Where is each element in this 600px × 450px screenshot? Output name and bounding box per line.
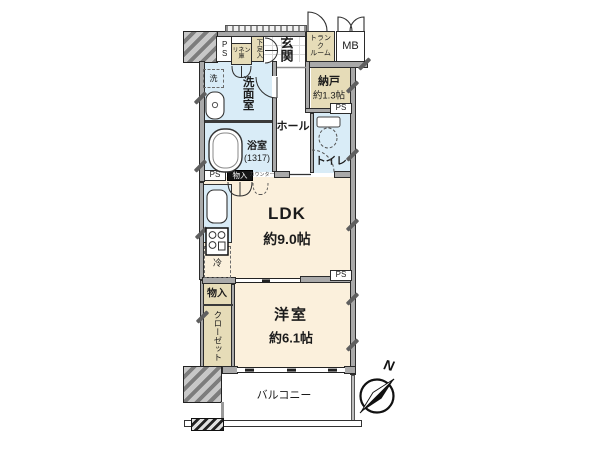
fridge-box: 冷 (204, 246, 231, 278)
meter-box-label: MB (342, 41, 359, 53)
compass-icon: N (360, 356, 396, 413)
wall-hall-bottom-right (334, 171, 351, 178)
western-room-size-label: 約6.1帖 (269, 332, 313, 347)
hall-label: ホール (277, 121, 310, 134)
window-western-balcony (237, 367, 345, 373)
wall-storage-closet-divider (203, 304, 233, 306)
fridge-label: 冷 (213, 256, 222, 269)
ps-box-top: PS (216, 36, 232, 62)
washroom-door-opening (272, 76, 277, 98)
ps-box-storage: PS (330, 103, 352, 114)
ldk-size-label: 約9.0帖 (263, 231, 310, 247)
washer-label: 洗 (210, 73, 218, 84)
ps-label: PS (336, 271, 347, 279)
ps-label: PS (220, 40, 228, 58)
counter-label: カウンター (249, 173, 274, 179)
wall-hall-bottom-left (274, 171, 290, 178)
ldk-label: LDK (268, 204, 306, 224)
ps-label: PS (210, 171, 221, 179)
bathroom-name: 浴室 (244, 141, 270, 153)
storage-room-size: 約1.3帖 (313, 92, 345, 103)
trunk-room-label-2: ルーム (307, 50, 334, 57)
ps-box-bath: PS (204, 170, 226, 181)
mb-door-arcs (338, 17, 364, 31)
meter-box: MB (336, 31, 365, 62)
wall-western-bottom-left (222, 366, 238, 374)
north-label: N (382, 356, 396, 374)
storage-room-label: 納戸 (318, 76, 340, 89)
wall-toilet-left (310, 113, 314, 173)
linen-label-2: 庫 (232, 54, 250, 60)
room-western (234, 283, 351, 367)
bathroom-label: 浴室 (1317) (244, 141, 270, 163)
balcony-right-rail (351, 375, 355, 423)
column-top-left (183, 31, 218, 63)
washroom-label: 洗面室 (240, 76, 253, 111)
toilet-label: トイレ (315, 155, 347, 167)
wall-western-bottom-right (344, 366, 356, 374)
storage-kitchen-label: 物入 (233, 172, 248, 180)
washer-box: 洗 (203, 69, 224, 88)
shoe-cabinet-label: 下足入 (254, 39, 261, 59)
balcony-label: バルコニー (257, 390, 312, 403)
balcony-divider (191, 418, 224, 431)
column-bottom-left (183, 366, 222, 403)
wall-washroom-bathroom (205, 120, 272, 123)
wall-left-closet (200, 280, 204, 368)
ps-box-right: PS (330, 270, 352, 281)
sliding-door-ldk-western (236, 278, 300, 283)
shoe-cabinet: 下足入 (251, 36, 264, 62)
entrance-label: 玄関 (278, 36, 293, 62)
entry-door-band (225, 25, 307, 32)
floor-plan-canvas: PS リネン庫 下足入 トランクルーム MB PS PS 物入 PS 洗 冷 玄… (0, 0, 600, 450)
bathroom-size: (1317) (244, 153, 270, 163)
wall-ldk-western-left (202, 277, 236, 284)
storage-left-label: 物入 (207, 288, 227, 300)
trunk-door-arc (308, 12, 327, 31)
trunk-room-label-1: トランク (307, 35, 334, 50)
linen-cabinet: リネン庫 (231, 43, 252, 65)
western-room-label: 洋室 (274, 306, 308, 323)
ps-label: PS (336, 104, 347, 112)
trunk-room-box: トランクルーム (306, 31, 335, 62)
wall-closet-right (231, 284, 235, 367)
room-kitchen (202, 184, 232, 243)
closet-label: クローゼット (212, 311, 222, 362)
